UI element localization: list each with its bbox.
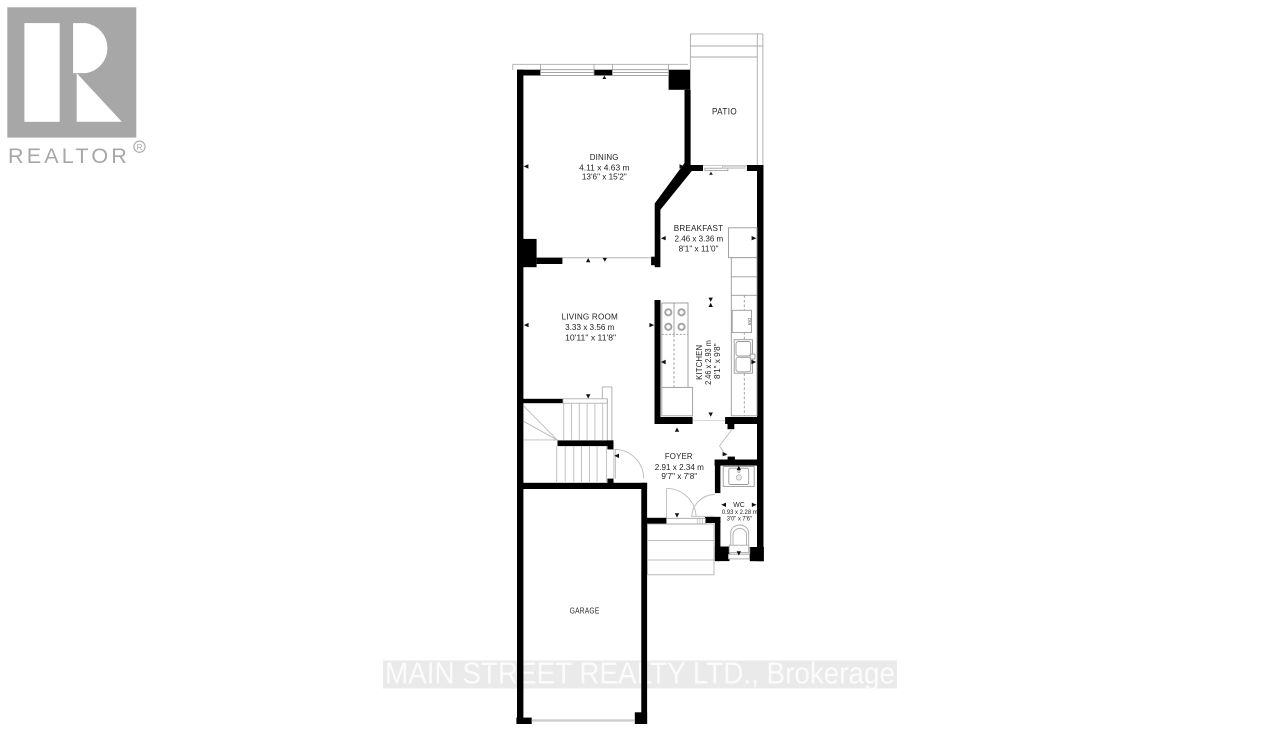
svg-text:2.46 x 2.93 m: 2.46 x 2.93 m bbox=[704, 340, 713, 385]
svg-text:10'11" x 11'8": 10'11" x 11'8" bbox=[565, 333, 616, 342]
svg-text:WC: WC bbox=[733, 500, 745, 509]
svg-text:MAIN STREET REALTY LTD., Broke: MAIN STREET REALTY LTD., Brokerage bbox=[385, 656, 895, 691]
svg-text:R: R bbox=[137, 143, 143, 152]
svg-text:PATIO: PATIO bbox=[712, 106, 737, 116]
svg-text:8'1" x 9'8": 8'1" x 9'8" bbox=[713, 343, 722, 379]
svg-text:2.46 x 3.36 m: 2.46 x 3.36 m bbox=[675, 235, 724, 244]
svg-text:GARAGE: GARAGE bbox=[570, 607, 600, 616]
svg-text:13'6" x 15'2": 13'6" x 15'2" bbox=[582, 173, 627, 182]
svg-text:8'1" x 11'0": 8'1" x 11'0" bbox=[679, 244, 719, 253]
svg-text:KITCHEN: KITCHEN bbox=[694, 345, 704, 380]
svg-text:REALTOR: REALTOR bbox=[8, 144, 130, 168]
svg-text:2.91 x 2.34 m: 2.91 x 2.34 m bbox=[655, 463, 704, 472]
svg-text:DW: DW bbox=[747, 318, 752, 326]
svg-text:BREAKFAST: BREAKFAST bbox=[674, 223, 724, 233]
svg-text:FOYER: FOYER bbox=[665, 451, 693, 461]
svg-text:4.11 x 4.63 m: 4.11 x 4.63 m bbox=[579, 163, 630, 172]
svg-text:LIVING ROOM: LIVING ROOM bbox=[562, 311, 618, 321]
svg-text:3.33 x 3.56 m: 3.33 x 3.56 m bbox=[565, 323, 615, 332]
svg-text:DINING: DINING bbox=[590, 152, 619, 162]
svg-text:3'0" x 7'6": 3'0" x 7'6" bbox=[727, 516, 752, 523]
svg-text:9'7" x 7'8": 9'7" x 7'8" bbox=[661, 472, 697, 481]
